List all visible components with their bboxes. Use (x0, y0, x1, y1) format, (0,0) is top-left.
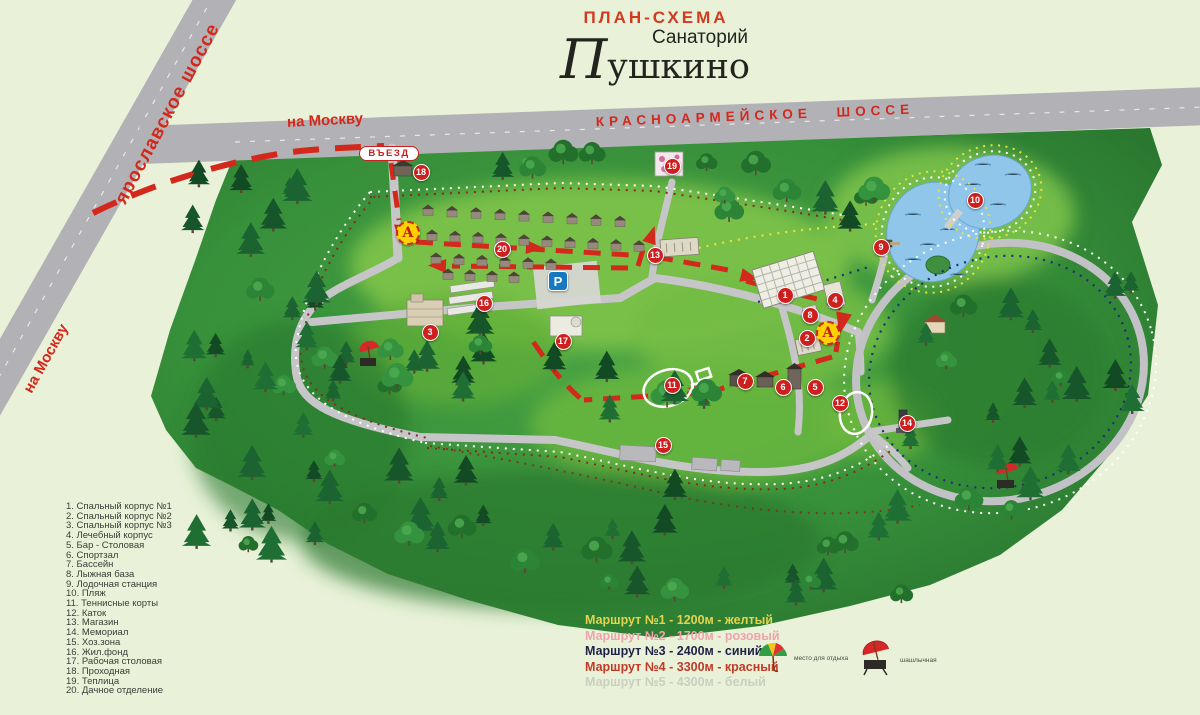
routes-legend: Маршрут №1 - 1200м - желтыйМаршрут №2 - … (585, 613, 845, 691)
umbrella-grill-icon (856, 640, 898, 676)
route-legend-item-5: Маршрут №5 - 4300м - белый (585, 675, 845, 691)
map-marker-3[interactable]: 3 (422, 324, 439, 341)
map-marker-7[interactable]: 7 (737, 373, 754, 390)
legend-item-20: 20. Дачное отделение (66, 686, 281, 696)
map-marker-1[interactable]: 1 (777, 287, 794, 304)
map-marker-6[interactable]: 6 (775, 379, 792, 396)
map-marker-20[interactable]: 20 (494, 241, 511, 258)
map-marker-11[interactable]: 11 (664, 377, 681, 394)
map-marker-4[interactable]: 4 (827, 292, 844, 309)
legend-list: 1. Спальный корпус №12. Спальный корпус … (66, 502, 281, 696)
poi-label-shashlik: шашлычная (900, 657, 937, 664)
map-marker-16[interactable]: 16 (476, 295, 493, 312)
poi-label-rest: место для отдыха (794, 655, 848, 662)
map-marker-17[interactable]: 17 (555, 333, 572, 350)
shop-building (660, 237, 699, 257)
map-marker-5[interactable]: 5 (807, 379, 824, 396)
map-marker-9[interactable]: 9 (873, 239, 890, 256)
map-marker-14[interactable]: 14 (899, 415, 916, 432)
parking-sign[interactable]: P (548, 271, 568, 291)
map-marker-15[interactable]: 15 (655, 437, 672, 454)
map-marker-12[interactable]: 12 (832, 395, 849, 412)
entrance-sign[interactable]: ВЪЕЗД (359, 146, 419, 161)
bus-stop-marker-1[interactable]: А (396, 221, 420, 245)
map-marker-8[interactable]: 8 (802, 307, 819, 324)
map-marker-2[interactable]: 2 (799, 330, 816, 347)
plan-schema-poster: ПЛАН-СХЕМА Санаторий Пушкино ярославское… (0, 0, 1200, 715)
route-legend-item-2: Маршрут №2 - 1700м - розовый (585, 629, 845, 645)
bus-stop-marker-2[interactable]: А (816, 321, 840, 345)
map-marker-13[interactable]: 13 (647, 247, 664, 264)
map-marker-18[interactable]: 18 (413, 164, 430, 181)
sanatorium-logo: Пушкино (530, 33, 750, 87)
umbrella-multicolor-icon (756, 642, 790, 674)
route-legend-item-1: Маршрут №1 - 1200м - желтый (585, 613, 845, 629)
page-title: ПЛАН-СХЕМА (556, 8, 756, 28)
map-marker-19[interactable]: 19 (664, 158, 681, 175)
map-marker-10[interactable]: 10 (967, 192, 984, 209)
